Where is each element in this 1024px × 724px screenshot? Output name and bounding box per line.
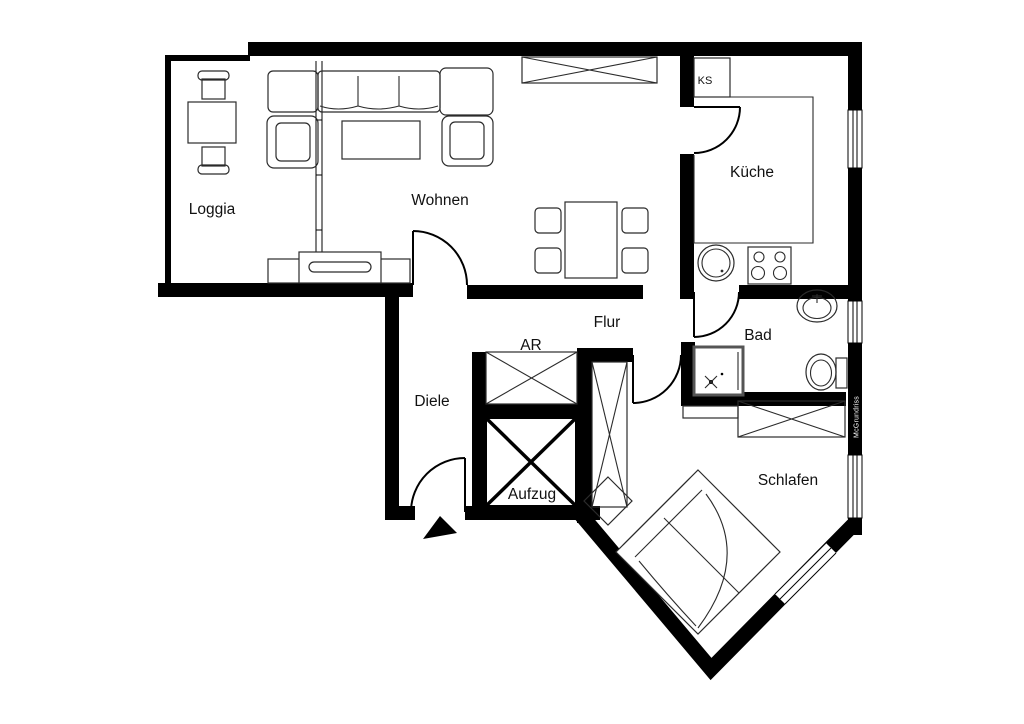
- floorplan-drawing: Loggia Wohnen Küche Flur Diele Bad Schla…: [0, 0, 1024, 724]
- dining-table: [565, 202, 617, 278]
- shower: [694, 347, 743, 395]
- label-kueche: Küche: [730, 164, 774, 181]
- label-ar: AR: [520, 337, 542, 354]
- label-bad: Bad: [744, 327, 772, 344]
- ar-storage: [486, 352, 577, 404]
- wall-diele-west: [385, 297, 399, 520]
- sofa-corner-right: [440, 68, 493, 115]
- loggia-table: [188, 102, 236, 143]
- armchair-right-seat: [450, 122, 484, 159]
- floorplan-page: Loggia Wohnen Küche Flur Diele Bad Schla…: [0, 0, 1024, 724]
- sofa-middle: [318, 71, 440, 112]
- wohnen-furniture: [267, 57, 657, 283]
- loggia-furniture: [188, 71, 236, 174]
- label-loggia: Loggia: [189, 201, 236, 218]
- door-entrance: [411, 458, 465, 539]
- label-wohnen: Wohnen: [411, 192, 468, 209]
- label-schlafen: Schlafen: [758, 472, 818, 489]
- schlafen-furniture: [584, 401, 845, 634]
- door-bad: [694, 292, 739, 337]
- armchair-left-seat: [276, 123, 310, 161]
- sofa-front-edge: [320, 106, 438, 109]
- wall-loggia-west: [165, 55, 171, 290]
- stove: [748, 247, 791, 284]
- door-schlafen: [633, 355, 681, 403]
- dining-chair-1: [535, 208, 561, 233]
- dining-chair-4: [622, 248, 648, 273]
- window-bad: [848, 301, 862, 343]
- flur-wardrobe-tall: [592, 362, 627, 507]
- schlafen-shelf: [683, 406, 738, 418]
- door-kueche: [694, 107, 740, 153]
- wall-top: [248, 42, 862, 56]
- kitchen-sink: [698, 245, 734, 281]
- door-wohnen: [413, 231, 467, 285]
- loggia-chair-top-seat: [202, 79, 225, 99]
- washbasin: [797, 290, 837, 322]
- bed: [616, 470, 780, 634]
- label-flur: Flur: [594, 314, 621, 331]
- entrance-arrow: [423, 516, 457, 539]
- wall-stub-bad: [680, 285, 694, 299]
- toilet: [806, 354, 847, 390]
- label-ks: KS: [698, 75, 713, 87]
- window-kueche: [848, 110, 862, 168]
- wall-aufzug-west: [472, 352, 486, 520]
- tv-lowboard: [268, 252, 410, 283]
- schlafen-wardrobe: [738, 401, 845, 437]
- label-diele: Diele: [414, 393, 449, 410]
- label-aufzug: Aufzug: [508, 486, 556, 503]
- wall-flur-schlafen: [577, 348, 633, 362]
- coffee-table: [342, 121, 420, 159]
- window-schlafen-east: [848, 455, 862, 518]
- dining-chair-3: [622, 208, 648, 233]
- dining-chair-2: [535, 248, 561, 273]
- wall-aufzug-top: [472, 404, 582, 418]
- sofa-corner-left: [268, 71, 318, 112]
- wall-bottom-loggia: [158, 283, 413, 297]
- window-schlafen-angled: [775, 543, 836, 604]
- sideboard-top: [522, 57, 657, 83]
- wall-wohnen-flur: [467, 285, 643, 299]
- wall-aufzug-east: [577, 348, 592, 523]
- wall-kueche-west-upper: [680, 56, 694, 107]
- wall-kueche-west-lower: [680, 154, 694, 285]
- loggia-chair-bottom-seat: [202, 147, 225, 166]
- wall-right-1: [848, 42, 862, 110]
- wall-right-2: [848, 168, 862, 301]
- dining-set: [535, 202, 648, 278]
- wall-loggia-top: [165, 55, 250, 61]
- watermark-text: McGrundriss: [854, 396, 861, 438]
